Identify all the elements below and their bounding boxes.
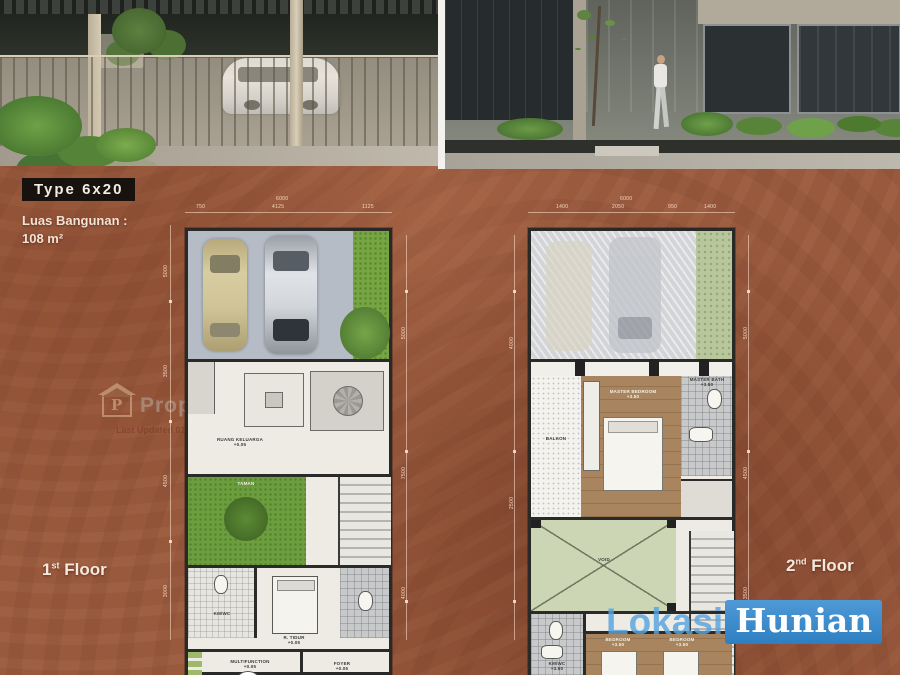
- kitchen-counter: [188, 362, 215, 414]
- fence-pillar-center: [290, 0, 303, 152]
- bed: [601, 651, 637, 675]
- exterior-photo-left: [0, 0, 438, 166]
- room-label-void: VOID: [589, 557, 619, 562]
- plan2-dimline-left: [514, 235, 515, 640]
- planter-wall: [445, 140, 900, 153]
- plan1-dim-right: 4000: [401, 587, 407, 599]
- second-floor-label: 2nd Floor: [786, 556, 854, 576]
- room-label-bed: R. TIDUR +0.05: [274, 635, 314, 646]
- floor-plan-1: RUANG KELUARGA +0.05 TAMAN KM/WC R. TIDU…: [185, 228, 392, 675]
- sink: [541, 645, 563, 659]
- first-floor-sup: st: [51, 560, 59, 570]
- closet: [681, 479, 732, 519]
- logo-box: Hunian: [725, 600, 882, 644]
- tree-foliage: [112, 8, 166, 54]
- silver-car-top-view: [265, 236, 317, 354]
- room-elev: +3.50: [537, 666, 577, 671]
- room-label-living: RUANG KELUARGA +0.05: [208, 437, 272, 448]
- toilet: [549, 621, 563, 640]
- dining-area: [310, 371, 384, 431]
- plan1-dim-seg: 750: [196, 204, 205, 210]
- wall: [188, 649, 389, 652]
- room-label-garden: TAMAN: [228, 481, 264, 486]
- plan1-dim-seg: 4125: [272, 204, 284, 210]
- plan2-dim-seg: 1400: [704, 204, 716, 210]
- plan2-dim-right: 4500: [743, 467, 749, 479]
- house-p-icon: P: [102, 395, 132, 417]
- dim-tick: [513, 450, 516, 453]
- toilet: [214, 575, 228, 594]
- plan1-dim-right: 7500: [401, 467, 407, 479]
- dim-tick: [513, 290, 516, 293]
- room-label-bath: KM/WC: [202, 611, 242, 616]
- photo-divider: [438, 0, 445, 169]
- plan1-dim-seg: 1125: [362, 204, 374, 210]
- plan1-dim-left: 4500: [163, 475, 169, 487]
- entry-step: [595, 146, 659, 156]
- first-floor-word: Floor: [64, 560, 107, 579]
- dim-tick: [513, 600, 516, 603]
- logo-text-hunian: Hunian: [735, 601, 872, 640]
- plan2-dim-left: 2500: [509, 497, 515, 509]
- dim-tick: [405, 290, 408, 293]
- beige-car-top-view: [203, 239, 247, 351]
- master-bed: [603, 417, 663, 491]
- shrub-row: [681, 112, 733, 136]
- room-elev: +3.50: [593, 394, 673, 399]
- sofa-set: [244, 373, 304, 427]
- plan1-dimline-top: [185, 212, 392, 213]
- car-glass: [618, 317, 652, 339]
- lokasi-hunian-logo: Lokasi Hunian: [606, 600, 882, 644]
- plan2-dimline-right: [748, 235, 749, 640]
- facade-beam: [698, 0, 900, 24]
- ghost-beige-car: [546, 241, 592, 351]
- exterior-photo-right: [445, 0, 900, 169]
- dining-table: [333, 386, 363, 416]
- first-floor-label: 1st Floor: [42, 560, 107, 580]
- second-floor-word: Floor: [811, 556, 854, 575]
- building-area-title: Luas Bangunan :: [22, 212, 127, 230]
- pillow: [608, 421, 658, 433]
- dim-tick: [747, 450, 750, 453]
- room-elev: +0.05: [274, 640, 314, 645]
- plan2-dim-total: 6000: [620, 196, 632, 202]
- room-label-masterbath: MASTER BATH +3.50: [683, 377, 731, 388]
- type-label: Type 6x20: [22, 178, 135, 201]
- dim-tick: [405, 450, 408, 453]
- logo-text-lokasi: Lokasi: [606, 601, 723, 643]
- tree-canopy: [577, 10, 591, 20]
- room-elev: +0.05: [218, 664, 282, 669]
- shrub: [96, 128, 156, 162]
- room-label-bath2: KM/WC +3.50: [537, 661, 577, 672]
- sink: [689, 427, 713, 442]
- stepping-stones: [188, 652, 202, 675]
- car-glass: [273, 251, 309, 271]
- bed: [272, 576, 318, 634]
- plan2-dim-right: 3500: [743, 587, 749, 599]
- corner-bush: [340, 307, 390, 359]
- coffee-table: [265, 392, 283, 408]
- room-label-balcony: BALKON: [537, 436, 575, 441]
- room-label-multi: MULTIFUNCTION +0.05: [218, 659, 282, 670]
- round-table: [236, 671, 260, 675]
- plan1-dim-total: 6000: [276, 196, 288, 202]
- plan2-dim-seg: 2050: [612, 204, 624, 210]
- toilet: [707, 389, 722, 409]
- plan2-dim-right: 5000: [743, 327, 749, 339]
- dim-tick: [747, 290, 750, 293]
- room-elev: +3.50: [683, 382, 731, 387]
- staircase: [338, 477, 391, 565]
- person-head: [657, 55, 665, 64]
- wall-stub: [575, 359, 585, 376]
- shrub-patch: [497, 118, 563, 140]
- pillow: [277, 580, 315, 591]
- ghost-silver-car: [609, 237, 661, 353]
- window-wall: [586, 0, 698, 112]
- dim-tick: [169, 420, 172, 423]
- plan1-dim-left: 5000: [163, 265, 169, 277]
- roof-shadow: [0, 14, 438, 58]
- courtyard-bush: [224, 497, 268, 541]
- wall: [188, 359, 389, 362]
- void-skylight: [531, 520, 676, 611]
- plan1-dimline-left: [170, 225, 171, 640]
- car-glass: [273, 319, 309, 341]
- facade-panel: [445, 0, 573, 120]
- dim-tick: [405, 600, 408, 603]
- plan1-dim-left: 3000: [163, 585, 169, 597]
- room-label-master: MASTER BEDROOM +3.50: [593, 389, 673, 400]
- room-label-foyer: FOYER +0.05: [320, 661, 364, 672]
- plan1-dim-right: 5000: [401, 327, 407, 339]
- wall-stub: [531, 520, 541, 528]
- person-torso: [654, 64, 667, 88]
- dim-tick: [169, 540, 172, 543]
- second-floor-sup: nd: [795, 556, 806, 566]
- wall-stub: [649, 359, 659, 376]
- toilet: [358, 591, 373, 611]
- car-glass: [210, 255, 240, 273]
- car-glass: [210, 323, 240, 337]
- plan1-dim-left: 3500: [163, 365, 169, 377]
- window-dark: [703, 24, 791, 114]
- room-elev: +0.05: [208, 442, 272, 447]
- bed: [663, 651, 699, 675]
- window-dark: [797, 24, 900, 114]
- wall: [254, 568, 257, 638]
- wall-stub: [667, 520, 676, 528]
- sidewalk: [445, 153, 900, 169]
- wall-stub: [699, 359, 709, 376]
- plan2-dim-left: 4000: [509, 337, 515, 349]
- wall: [300, 652, 303, 675]
- building-area: Luas Bangunan : 108 m²: [22, 212, 127, 247]
- plan2-dim-seg: 950: [668, 204, 677, 210]
- sage-garden-strip: [696, 231, 732, 359]
- facade-column: [573, 0, 586, 152]
- balcony-planter: [531, 376, 581, 517]
- building-area-value: 108 m²: [22, 230, 127, 248]
- master-bath-floor: [681, 376, 732, 476]
- plan1-dimline-right: [406, 235, 407, 640]
- plan2-dim-seg: 1400: [556, 204, 568, 210]
- flyer-canvas: Type 6x20 Luas Bangunan : 108 m² 1st Flo…: [0, 0, 900, 675]
- watermark-letter: P: [111, 396, 122, 414]
- pergola-slats: [0, 0, 438, 14]
- plan2-dimline-top: [528, 212, 735, 213]
- room-elev: +0.05: [320, 666, 364, 671]
- dim-tick: [169, 300, 172, 303]
